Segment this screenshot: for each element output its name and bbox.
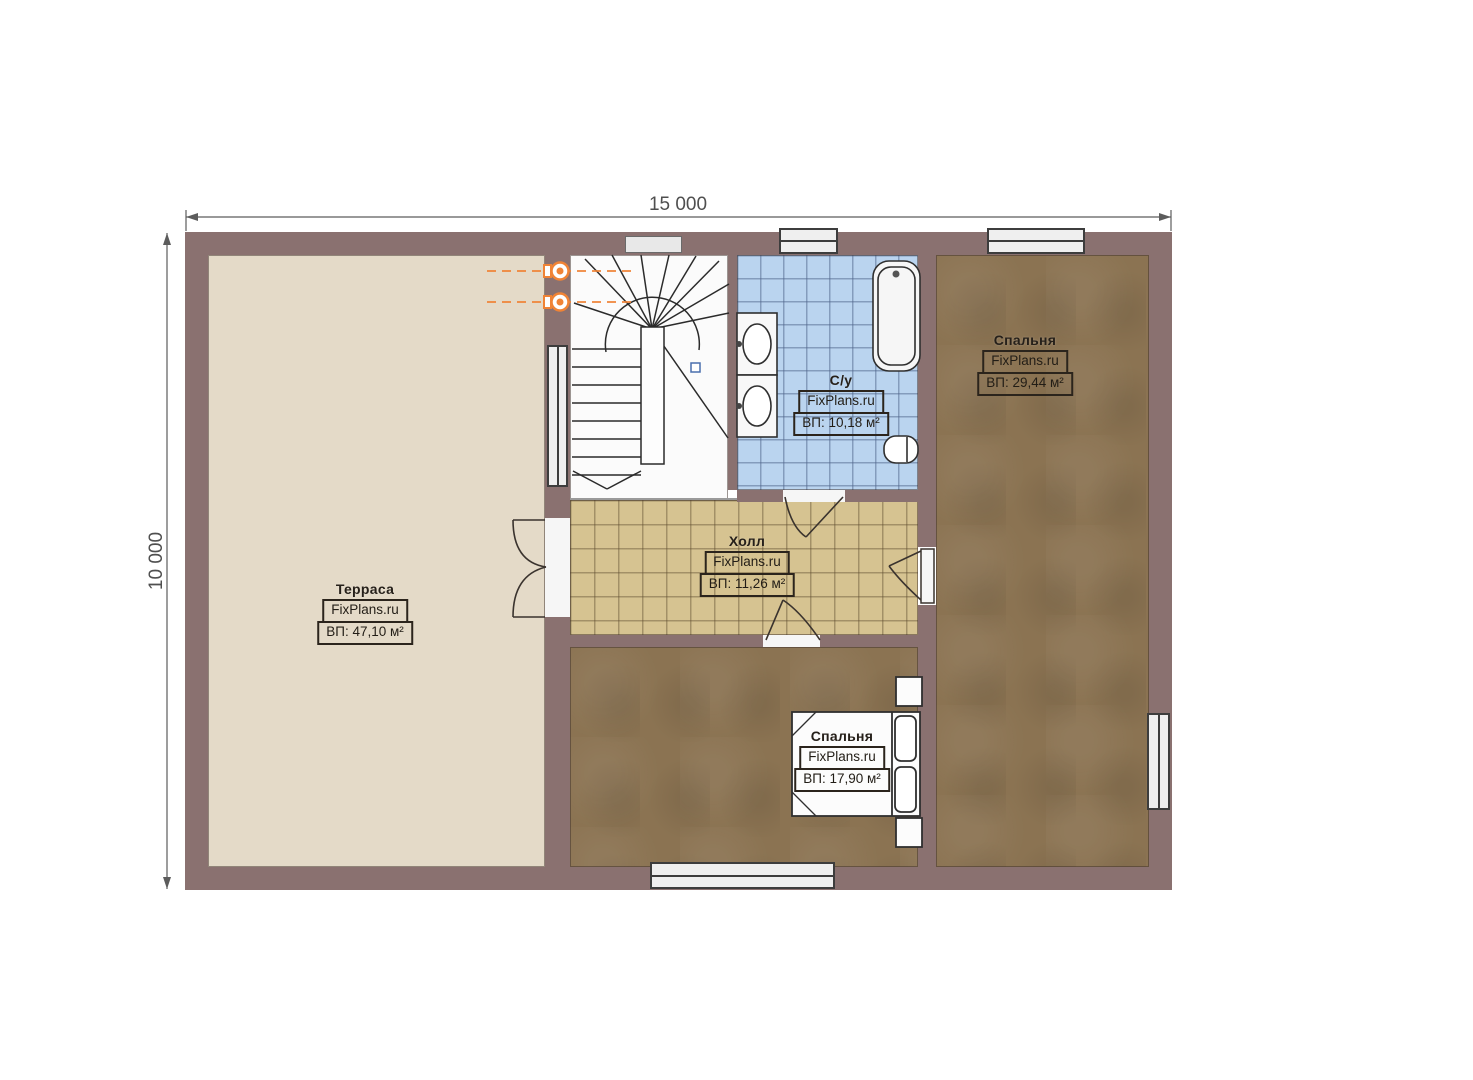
bathroom-label: С/у FixPlans.ru ВП: 10,18 м² xyxy=(793,372,889,436)
window-mullion xyxy=(989,240,1083,242)
window-mullion xyxy=(1158,715,1160,808)
floor-plan-canvas: 15 000 10 000 Терраса FixPlans.ru ВП: 47… xyxy=(0,0,1473,1080)
window-top-bath xyxy=(779,228,838,254)
dimension-height-label: 10 000 xyxy=(146,532,168,590)
window-terrace-stairs xyxy=(547,345,568,487)
room-area: ВП: 29,44 м² xyxy=(977,372,1073,396)
door-opening-terrace-hall xyxy=(545,518,570,617)
floor-transition-line xyxy=(570,498,737,500)
arrowhead xyxy=(163,877,171,889)
room-name: Спальня xyxy=(994,332,1057,348)
door-opening-bath-hall xyxy=(783,490,845,502)
wall-hall-north-b xyxy=(845,490,918,502)
room-area: ВП: 10,18 м² xyxy=(793,412,889,436)
door-opening-hall-bedroom xyxy=(763,635,820,647)
arrowhead xyxy=(186,213,198,221)
room-name: С/у xyxy=(830,372,853,388)
room-name: Терраса xyxy=(336,581,394,597)
brand-badge: FixPlans.ru xyxy=(322,599,408,623)
room-area: ВП: 17,90 м² xyxy=(794,768,890,792)
brand-badge: FixPlans.ru xyxy=(982,350,1068,374)
bedroom-bottom-label: Спальня FixPlans.ru ВП: 17,90 м² xyxy=(794,728,890,792)
room-name: Холл xyxy=(729,533,765,549)
bedroom-right-door-leaf xyxy=(921,549,934,603)
arrowhead xyxy=(1159,213,1171,221)
wall-hall-south-a xyxy=(570,635,763,647)
brand-badge: FixPlans.ru xyxy=(799,746,885,770)
hall-label: Холл FixPlans.ru ВП: 11,26 м² xyxy=(700,533,795,597)
wall-hall-north-a xyxy=(737,490,783,502)
window-bottom-bedroom xyxy=(650,862,835,889)
room-name: Спальня xyxy=(811,728,874,744)
wall-east-divider-b xyxy=(918,605,936,867)
room-area: ВП: 11,26 м² xyxy=(700,573,795,597)
wall-east-divider-a xyxy=(918,255,936,547)
window-mullion xyxy=(781,240,836,242)
dimension-width-label: 15 000 xyxy=(649,194,707,216)
stairwell-floor xyxy=(570,255,728,500)
terrace-floor xyxy=(208,255,545,867)
terrace-label: Терраса FixPlans.ru ВП: 47,10 м² xyxy=(317,581,413,645)
window-right-bedroom xyxy=(1147,713,1170,810)
room-area: ВП: 47,10 м² xyxy=(317,621,413,645)
wall-stairs-bath-divider xyxy=(728,255,737,490)
wall-left xyxy=(185,232,208,890)
wall-hall-south-b xyxy=(820,635,918,647)
bedroom-right-label: Спальня FixPlans.ru ВП: 29,44 м² xyxy=(977,332,1073,396)
brand-badge: FixPlans.ru xyxy=(704,551,790,575)
brand-badge: FixPlans.ru xyxy=(798,390,884,414)
window-top-bedroom xyxy=(987,228,1085,254)
window-mullion xyxy=(557,347,559,485)
arrowhead xyxy=(163,233,171,245)
window-mullion xyxy=(652,875,833,877)
window-top-stairs xyxy=(625,236,682,253)
